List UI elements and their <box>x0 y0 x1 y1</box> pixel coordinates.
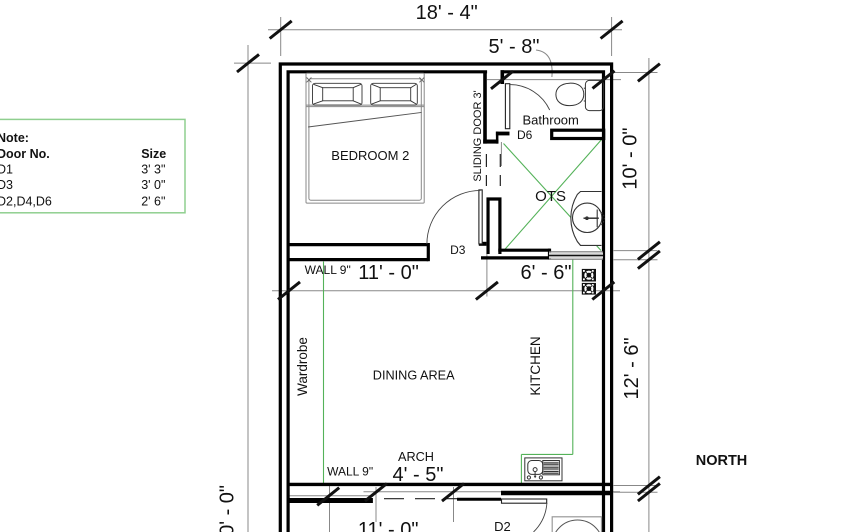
svg-text:Size: Size <box>141 147 166 161</box>
svg-text:Bathroom: Bathroom <box>523 112 579 127</box>
svg-text:18' - 4": 18' - 4" <box>416 2 478 24</box>
svg-text:12' - 6": 12' - 6" <box>621 337 643 399</box>
svg-text:6' - 6": 6' - 6" <box>521 262 572 284</box>
svg-text:D2,D4,D6: D2,D4,D6 <box>0 194 52 208</box>
svg-text:2' 6": 2' 6" <box>141 194 165 208</box>
svg-text:11' - 0": 11' - 0" <box>358 262 419 284</box>
svg-text:D3: D3 <box>450 243 466 257</box>
svg-text:WALL 9": WALL 9" <box>305 263 351 277</box>
svg-text:NORTH: NORTH <box>696 453 748 469</box>
svg-text:D2: D2 <box>494 519 511 532</box>
svg-text:Door No.: Door No. <box>0 147 50 161</box>
svg-text:D1: D1 <box>0 163 13 177</box>
svg-text:10' - 0": 10' - 0" <box>619 128 641 190</box>
svg-text:Wardrobe: Wardrobe <box>295 337 310 396</box>
svg-text:BEDROOM 2: BEDROOM 2 <box>331 148 409 163</box>
svg-text:D3: D3 <box>0 178 13 192</box>
svg-text:DINING AREA: DINING AREA <box>373 369 455 383</box>
svg-text:ARCH: ARCH <box>398 450 434 464</box>
svg-text:11' - 0": 11' - 0" <box>358 519 419 532</box>
svg-text:3' 3": 3' 3" <box>141 163 165 177</box>
svg-text:Note:: Note: <box>0 131 29 145</box>
svg-text:WALL 9": WALL 9" <box>327 465 373 479</box>
svg-text:KITCHEN: KITCHEN <box>528 336 543 395</box>
svg-text:20' - 0": 20' - 0" <box>217 485 239 532</box>
svg-text:D6: D6 <box>517 128 533 142</box>
svg-text:OTS: OTS <box>535 188 566 205</box>
svg-text:SLIDING DOOR 3': SLIDING DOOR 3' <box>472 90 484 181</box>
svg-text:5' - 8": 5' - 8" <box>489 36 540 58</box>
svg-text:4' - 5": 4' - 5" <box>393 464 444 486</box>
svg-text:3' 0": 3' 0" <box>141 178 165 192</box>
